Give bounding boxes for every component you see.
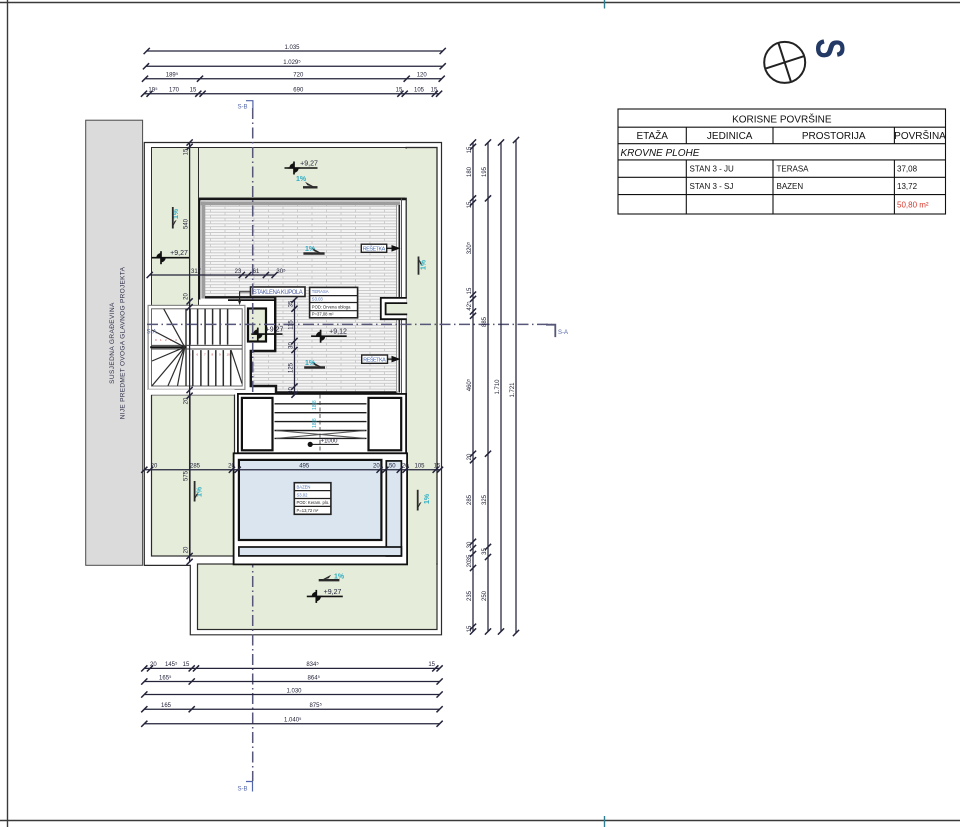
svg-text:REŠETKA: REŠETKA [363,356,386,363]
svg-text:POVRŠINA: POVRŠINA [894,129,946,142]
svg-text:105: 105 [414,464,425,470]
svg-text:189⁵: 189⁵ [166,72,179,79]
svg-text:42⁵: 42⁵ [466,301,473,311]
svg-text:S3.03: S3.03 [312,296,324,301]
svg-text:20: 20 [402,464,409,470]
svg-text:20: 20 [373,464,380,470]
svg-text:35: 35 [288,300,294,307]
svg-text:120: 120 [417,73,428,79]
svg-text:15: 15 [190,88,197,94]
svg-text:15: 15 [428,662,435,668]
svg-text:+9,27: +9,27 [324,589,342,596]
svg-text:20: 20 [151,464,158,470]
svg-text:KROVNE PLOHE: KROVNE PLOHE [621,148,700,159]
svg-text:325: 325 [482,494,488,505]
svg-text:18|8: 18|8 [312,418,318,428]
svg-text:BAZEN: BAZEN [297,484,311,489]
svg-text:15: 15 [183,148,189,155]
svg-text:P=37,08 m²: P=37,08 m² [312,312,334,317]
svg-text:285: 285 [467,494,473,505]
svg-text:STAN 3 - SJ: STAN 3 - SJ [690,182,734,191]
svg-text:S: S [808,38,852,58]
svg-text:15: 15 [467,287,473,294]
svg-text:20: 20 [183,293,189,300]
svg-text:145⁵: 145⁵ [165,661,178,668]
svg-text:15: 15 [431,88,438,94]
svg-text:+9,12: +9,12 [329,329,347,336]
svg-text:170: 170 [169,88,180,94]
svg-text:15: 15 [183,662,190,668]
svg-text:30: 30 [288,342,294,349]
svg-text:180: 180 [467,166,473,177]
svg-text:834⁵: 834⁵ [306,661,319,668]
svg-text:20: 20 [183,546,189,553]
svg-text:NIJE PREDMET OVOGA GLAVNOG PRO: NIJE PREDMET OVOGA GLAVNOG PROJEKTA [120,266,127,419]
svg-text:720: 720 [293,73,304,79]
svg-text:S-A: S-A [147,330,157,336]
svg-text:S-B: S-B [238,787,248,793]
svg-text:JEDINICA: JEDINICA [707,131,753,142]
svg-text:POD: Keram. plo.: POD: Keram. plo. [297,500,330,505]
svg-text:30: 30 [467,541,473,548]
svg-text:1%: 1% [197,486,204,497]
svg-text:SUSJEDNA GRAĐEVINA: SUSJEDNA GRAĐEVINA [109,302,116,384]
svg-text:235: 235 [467,590,473,601]
svg-text:13,72: 13,72 [897,182,918,191]
svg-text:1.710: 1.710 [495,379,501,395]
svg-text:KORISNE POVRŠINE: KORISNE POVRŠINE [732,113,832,126]
svg-text:15: 15 [467,625,473,632]
svg-text:285: 285 [190,464,201,470]
svg-text:TERASA: TERASA [312,289,329,294]
svg-text:37,08: 37,08 [897,165,918,174]
svg-text:TERASA: TERASA [777,165,810,174]
svg-text:18|8: 18|8 [312,400,318,410]
svg-text:1.721: 1.721 [510,382,516,398]
svg-text:20: 20 [183,397,189,404]
svg-text:250: 250 [482,590,488,601]
svg-text:+9,27: +9,27 [170,250,188,257]
svg-text:575: 575 [183,470,189,481]
svg-text:+9,27: +9,27 [266,327,284,334]
svg-text:540: 540 [183,218,189,229]
svg-text:61: 61 [253,269,260,275]
svg-text:23: 23 [235,269,242,275]
svg-text:19⁵: 19⁵ [148,87,158,94]
svg-text:20: 20 [150,662,157,668]
svg-text:S-A: S-A [558,330,568,336]
svg-text:15: 15 [434,464,441,470]
svg-text:+9,27: +9,27 [300,160,318,167]
svg-text:35: 35 [467,554,473,561]
svg-text:15: 15 [396,88,403,94]
svg-text:S-B: S-B [238,104,248,110]
svg-text:STAKLENA KUPOLA: STAKLENA KUPOLA [253,290,303,296]
svg-text:460⁵: 460⁵ [466,378,473,391]
svg-text:875⁵: 875⁵ [309,702,322,709]
svg-text:50,80 m²: 50,80 m² [897,201,929,210]
svg-text:1.029⁵: 1.029⁵ [283,59,301,66]
svg-text:15: 15 [467,146,473,153]
svg-text:1%: 1% [424,493,431,504]
svg-text:20: 20 [467,453,473,460]
svg-text:195: 195 [482,166,488,177]
svg-text:115: 115 [288,320,294,330]
svg-text:1.040⁵: 1.040⁵ [284,717,302,724]
svg-text:POD: Drvena obloga: POD: Drvena obloga [312,304,351,309]
svg-text:ETAŽA: ETAŽA [636,129,668,142]
svg-text:+1000: +1000 [321,438,339,444]
svg-text:105: 105 [414,88,425,94]
svg-text:125: 125 [288,362,294,373]
svg-text:STAN 3 - JU: STAN 3 - JU [690,165,735,174]
svg-text:P=13,72 m²: P=13,72 m² [297,508,319,513]
svg-text:885: 885 [482,316,488,327]
svg-text:320⁵: 320⁵ [466,241,473,254]
svg-text:15: 15 [467,201,473,208]
svg-text:20: 20 [228,464,235,470]
svg-text:165: 165 [161,703,172,709]
svg-text:10: 10 [227,353,231,357]
svg-text:REŠETKA: REŠETKA [363,245,386,252]
svg-text:317: 317 [191,269,202,275]
svg-text:30: 30 [288,387,294,394]
svg-text:165⁵: 165⁵ [159,674,172,681]
svg-text:1.030: 1.030 [286,688,302,694]
svg-text:S3.02: S3.02 [297,492,309,497]
svg-text:35: 35 [482,548,488,555]
svg-text:50: 50 [389,464,396,470]
svg-text:690: 690 [293,88,304,94]
svg-text:PROSTORIJA: PROSTORIJA [802,131,866,142]
svg-text:1%: 1% [173,208,180,219]
svg-text:1.035: 1.035 [284,45,300,51]
svg-text:30⁵: 30⁵ [276,268,286,275]
svg-text:20: 20 [467,560,473,567]
svg-text:864⁵: 864⁵ [308,674,321,681]
svg-text:495: 495 [299,464,310,470]
svg-text:BAZEN: BAZEN [777,182,804,191]
